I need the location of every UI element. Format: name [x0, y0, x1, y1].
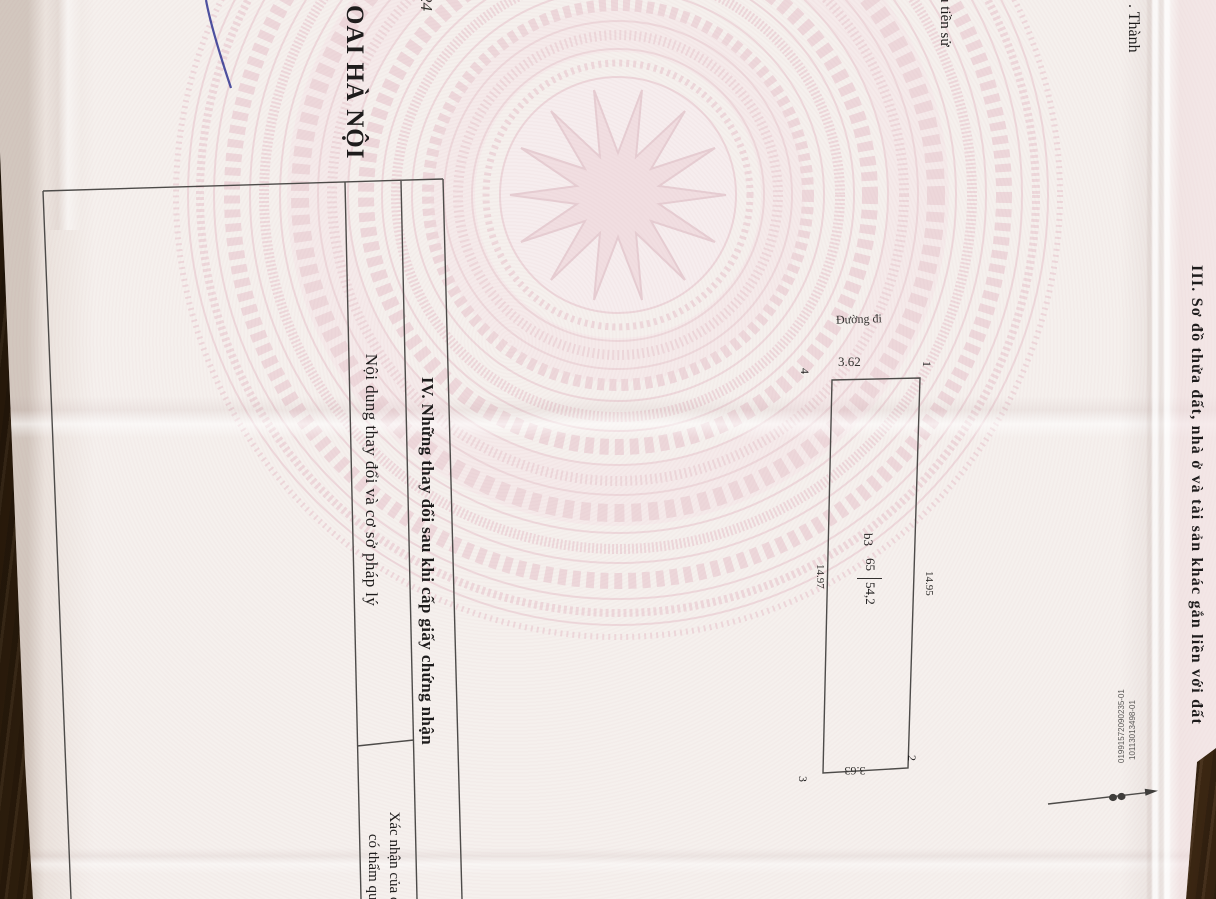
table-left-border: [43, 191, 71, 899]
north-arrow-shaft: [1048, 793, 1148, 805]
table-col-line-a: [345, 182, 361, 899]
serial-number-2: 01991572090235-01: [1117, 659, 1126, 763]
page-fold: [0, 0, 1216, 899]
table-right-border: [443, 179, 462, 899]
table-col2-header-line2: có thẩm quyền: [362, 753, 383, 899]
fragment-mid-top: u tiền sử: [936, 0, 953, 80]
certificate-page: III. Sơ đồ thửa đất, nhà ở và tài sản kh…: [0, 0, 1216, 899]
plot-corner-4: 4: [797, 368, 812, 384]
plot-dim-right: 14.95: [923, 571, 935, 607]
section4-title: IV. Những thay đổi sau khi cấp giấy chứn…: [417, 346, 437, 776]
fragment-handwritten-number: 24: [416, 0, 436, 39]
north-arrow-bead: [1109, 794, 1117, 801]
bronze-drum-watermark: [0, 0, 1216, 899]
section3-title: III. Sơ đồ thửa đất, nhà ở và tài sản kh…: [1187, 203, 1205, 787]
fragment-district-name: OAI HÀ NỘI: [340, 5, 368, 190]
plot-dim-top: 3.62: [838, 354, 861, 370]
photo-land-certificate: III. Sơ đồ thửa đất, nhà ở và tài sản kh…: [0, 0, 1216, 899]
horizontal-crease: [0, 0, 1216, 899]
document-line-work: [0, 0, 1216, 899]
pen-mark: [206, 0, 231, 88]
left-edge-shadow: [0, 0, 1216, 899]
table-col1-header: Nội dung thay đổi và cơ sở pháp lý: [361, 314, 381, 646]
table-top-border: [43, 179, 443, 191]
paper-texture: [0, 0, 1216, 899]
plot-road-label: Đường đi: [836, 311, 882, 328]
north-arrow-bead: [1118, 793, 1126, 800]
horizontal-crease-lower: [0, 0, 1216, 899]
table-row-separator: [357, 740, 414, 746]
north-arrow-head: [1145, 789, 1158, 796]
serial-number-1: 10113013498-01: [1128, 660, 1137, 760]
vertical-crease: [0, 0, 1216, 230]
plot-corner-2: 2: [904, 755, 919, 771]
plot-parcel-label: b3: [860, 533, 876, 555]
fragment-top-right: . Thành: [1124, 4, 1142, 74]
plot-fraction-bar: [857, 578, 882, 579]
plot-parcel-number: 65: [862, 558, 878, 578]
plot-corner-3: 3: [795, 776, 810, 792]
plot-dim-left: 14.97: [814, 564, 826, 600]
plot-parcel-area: 54,2: [862, 582, 878, 612]
table-col2-header: Xác nhận của cơ quan có thẩm quyền: [362, 753, 404, 899]
plot-dim-bottom: 3.63: [836, 763, 874, 778]
table-col2-header-line1: Xác nhận của cơ quan: [383, 753, 404, 899]
plot-corner-1: 1: [919, 361, 934, 377]
drum-star: [510, 90, 726, 300]
